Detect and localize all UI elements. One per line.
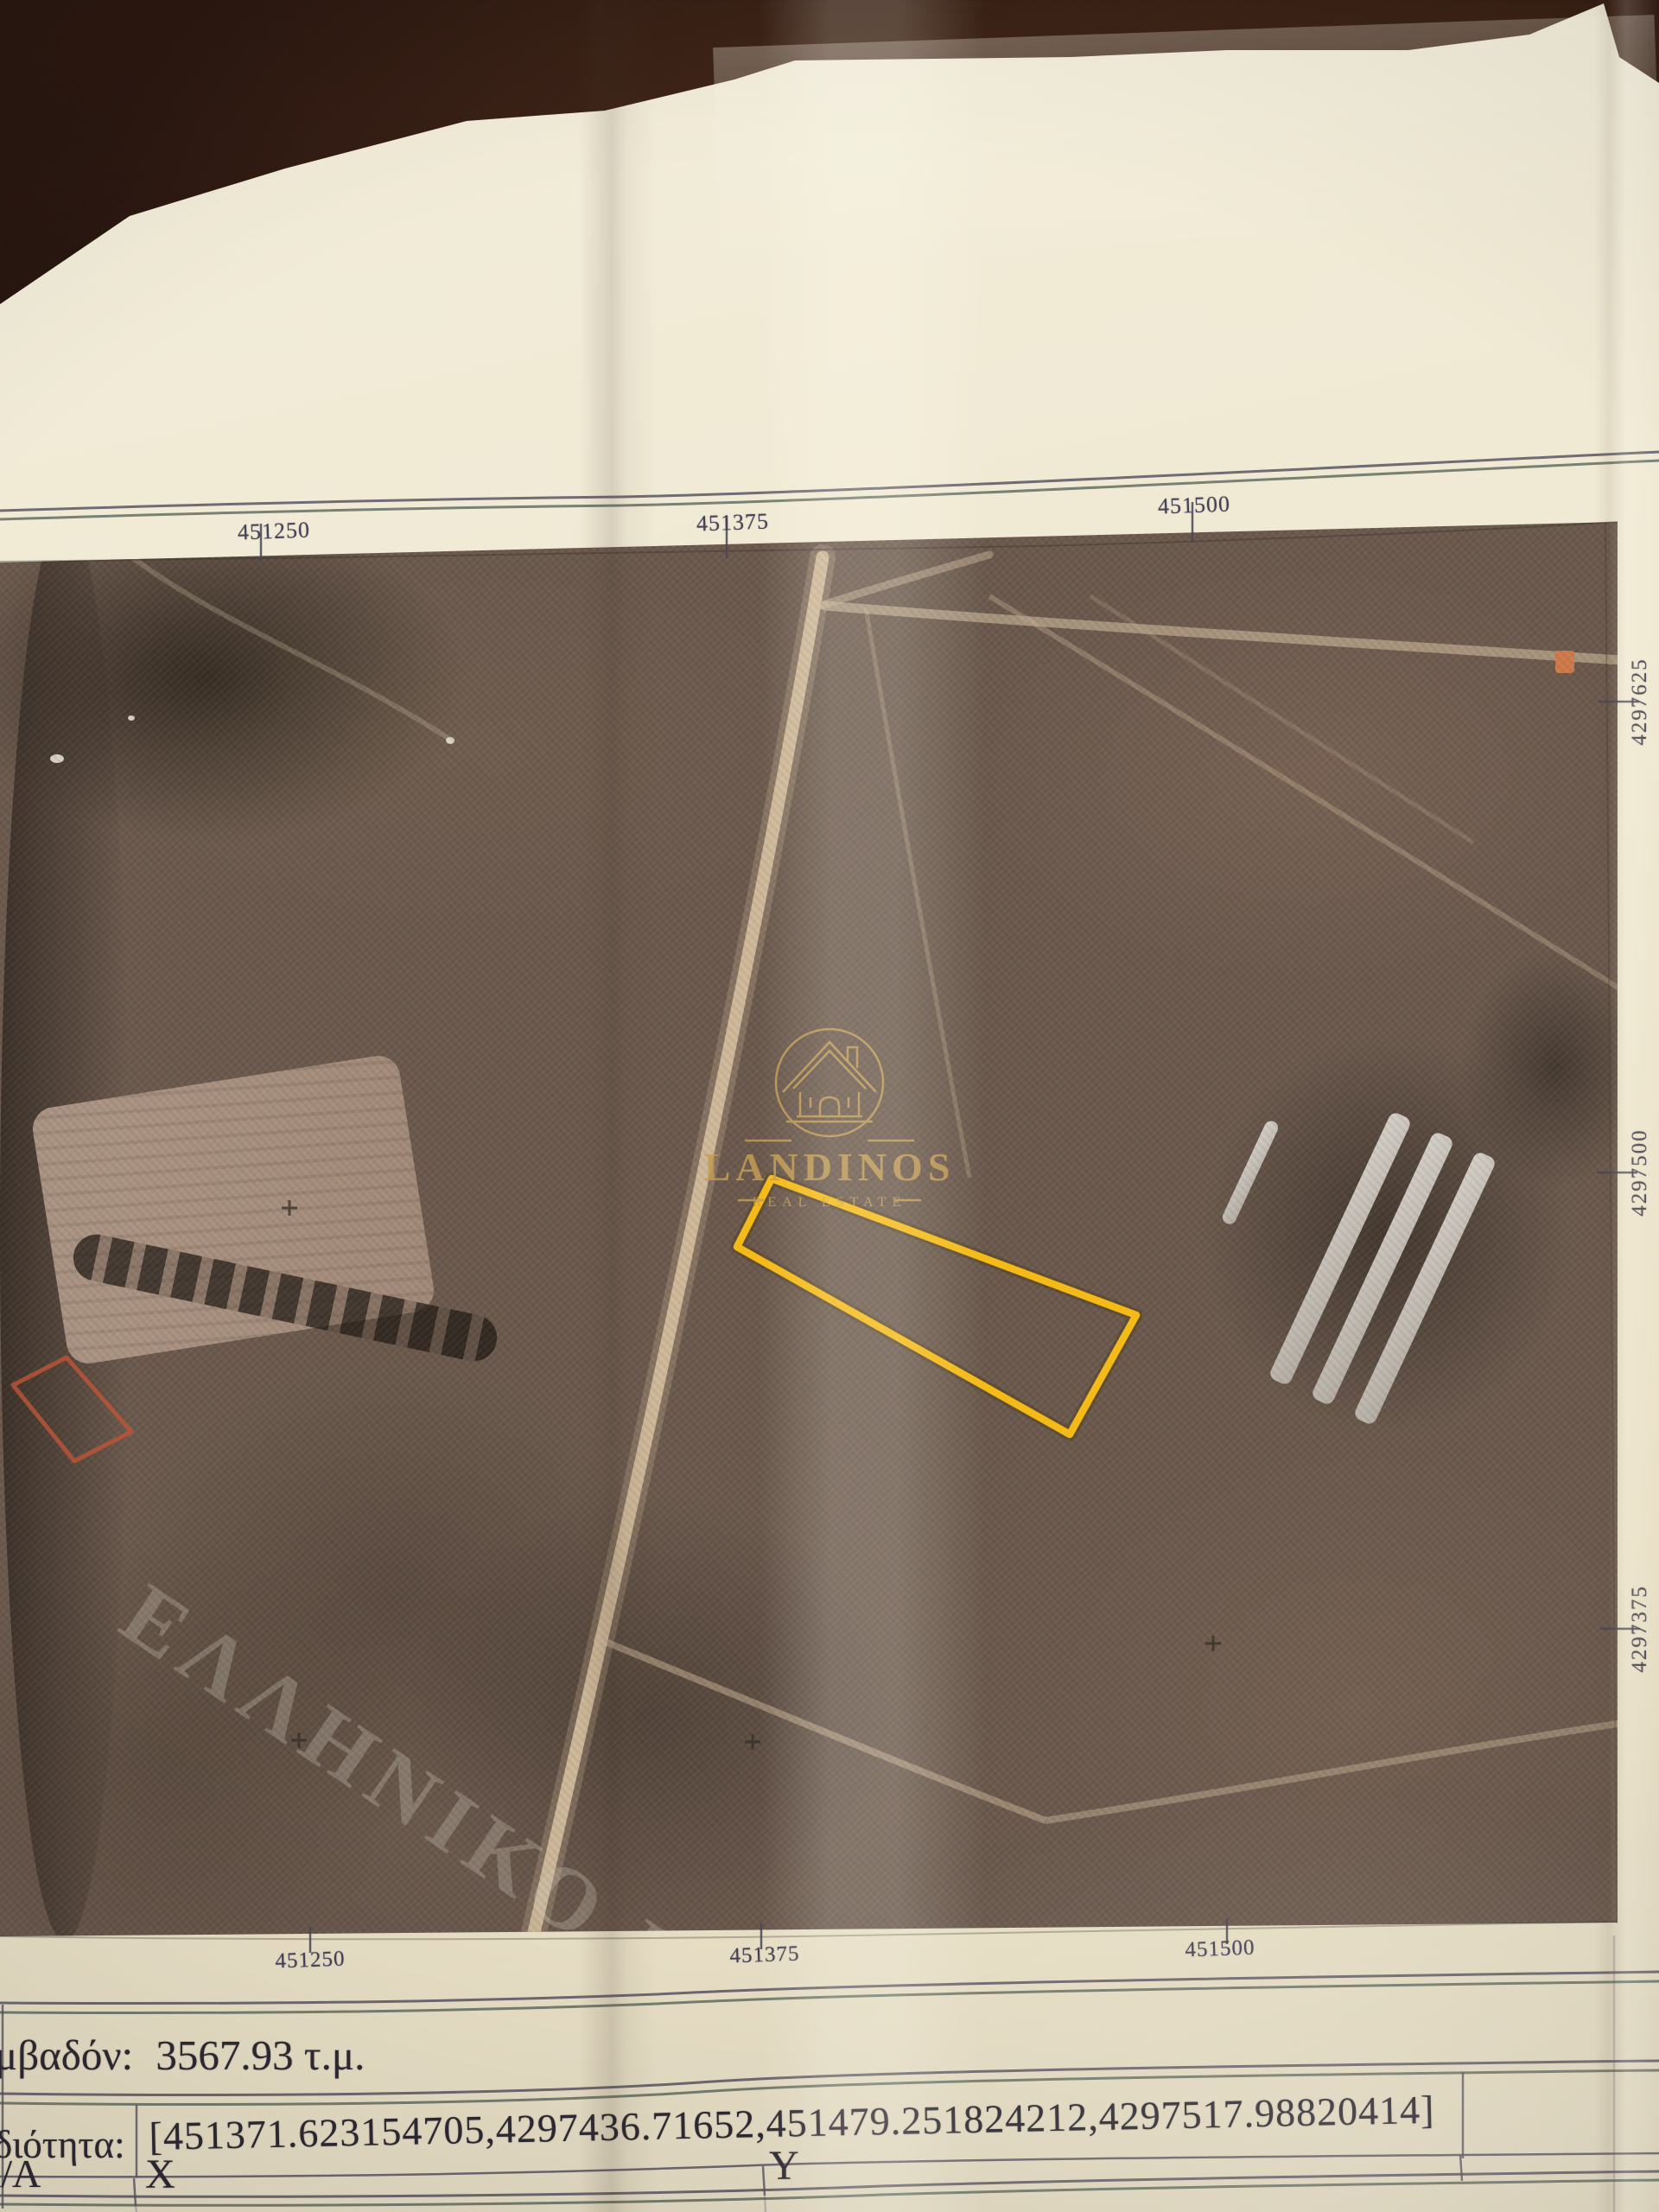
area-row: Εμβαδόν: 3567.93 τ.μ. bbox=[0, 2031, 365, 2080]
grid-crosses bbox=[282, 1200, 1221, 1750]
grid-label-top-2: 451375 bbox=[681, 508, 785, 537]
parcel-outline bbox=[737, 1179, 1136, 1434]
column-header-x: X bbox=[145, 2151, 175, 2198]
column-header-aa: Α/Α bbox=[0, 2151, 41, 2196]
grid-label-top-3: 451500 bbox=[1142, 491, 1247, 520]
grid-label-right-3: 4297375 bbox=[1628, 1534, 1656, 1724]
logo-name: LANDINOS bbox=[704, 1145, 956, 1189]
area-label: Εμβαδόν: bbox=[0, 2031, 133, 2079]
grid-label-top-1: 451250 bbox=[222, 517, 327, 546]
map-frame-lines bbox=[0, 452, 1659, 519]
logo-subtitle: REAL ESTATE bbox=[753, 1195, 907, 1210]
grid-label-right-1: 4297625 bbox=[1628, 607, 1656, 797]
red-parcel-outline bbox=[13, 1357, 131, 1461]
grid-ticks bbox=[261, 502, 1640, 1953]
grid-label-bottom-1: 451250 bbox=[258, 1947, 363, 1974]
grid-label-right-2: 4297500 bbox=[1628, 1077, 1656, 1268]
grid-label-bottom-2: 451375 bbox=[713, 1942, 817, 1969]
landinos-logo: LANDINOS REAL ESTATE bbox=[704, 1029, 956, 1210]
linework-layer: LANDINOS REAL ESTATE bbox=[0, 0, 1659, 2212]
area-value: 3567.93 τ.μ. bbox=[156, 2031, 365, 2079]
column-header-y: Y bbox=[769, 2142, 799, 2190]
grid-label-bottom-3: 451500 bbox=[1168, 1935, 1273, 1963]
